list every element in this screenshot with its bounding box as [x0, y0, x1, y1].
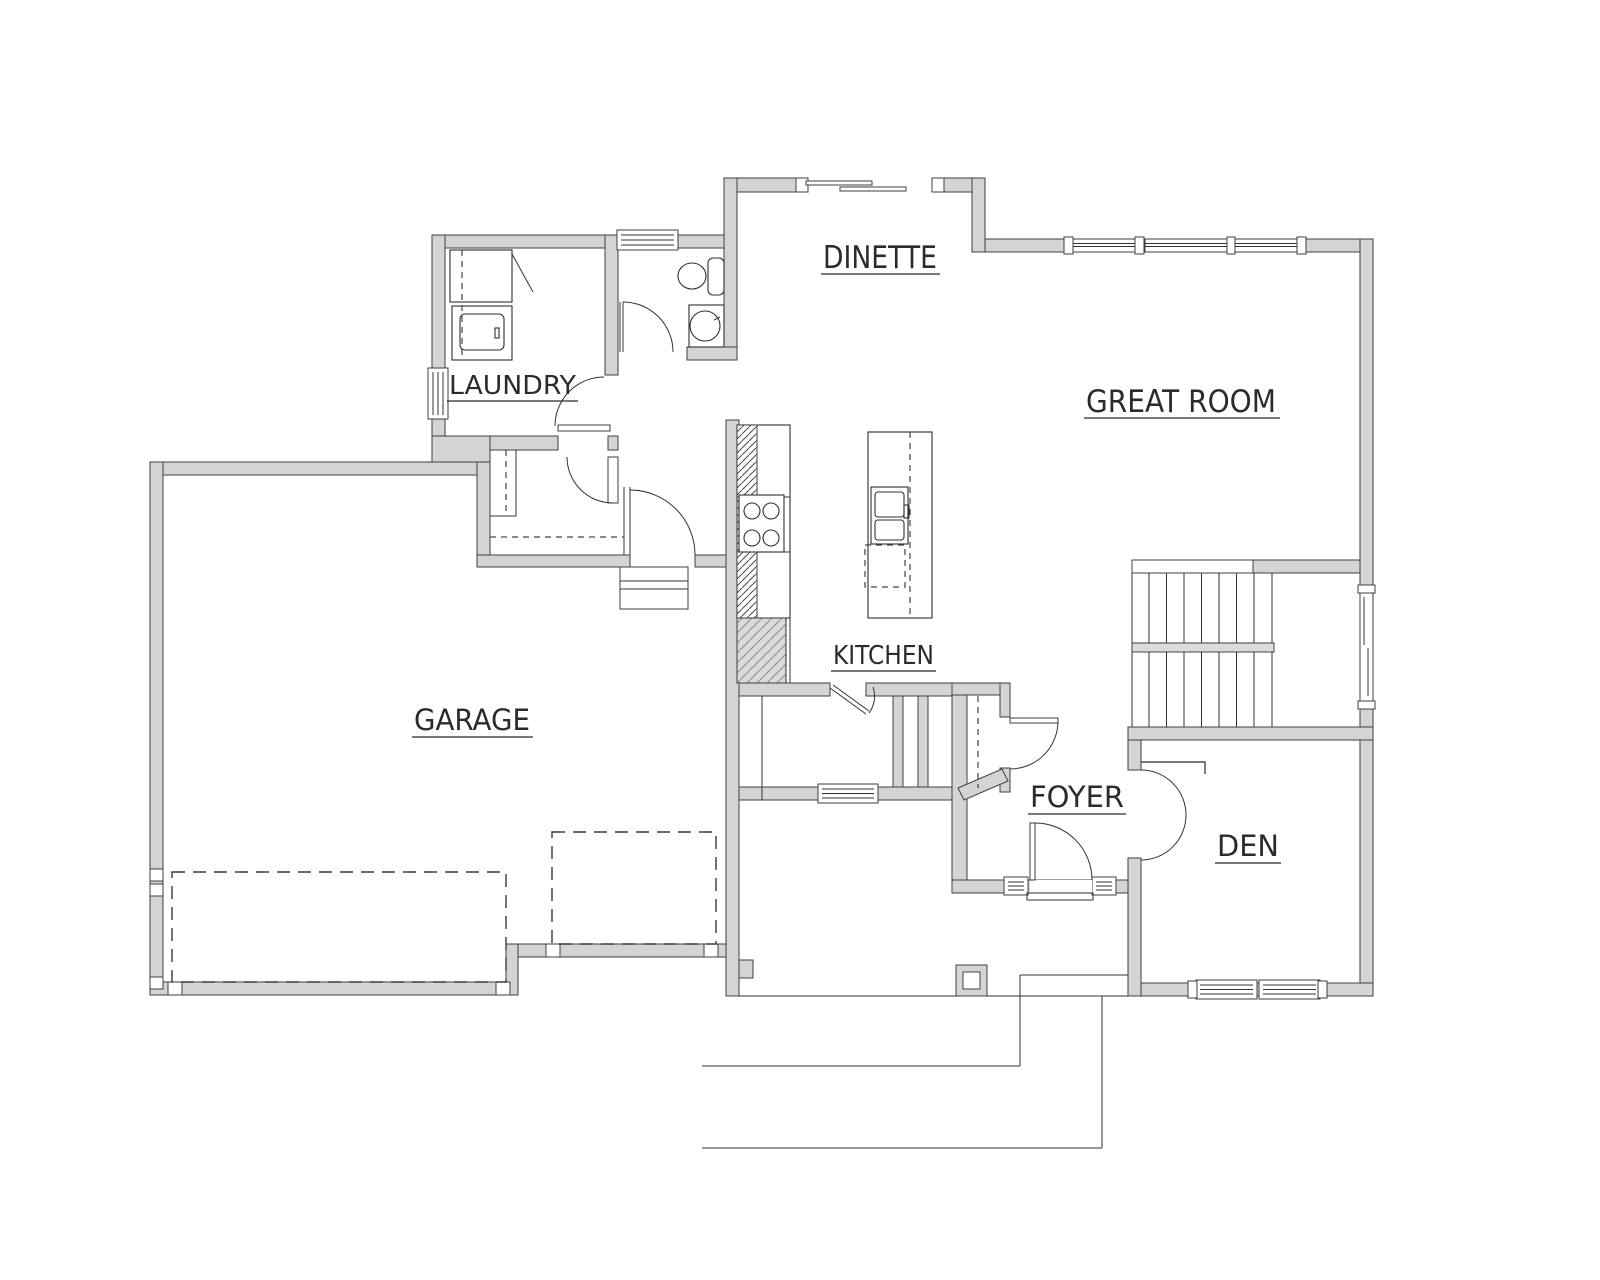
window-icon	[617, 230, 678, 250]
door-swing-icon	[1010, 718, 1058, 769]
toilet-icon	[678, 258, 724, 295]
room-label-text: KITCHEN	[833, 641, 934, 671]
front-stoop	[1027, 893, 1093, 900]
base-cabinet	[737, 618, 790, 683]
room-label-great-room: GREAT ROOM	[1084, 384, 1280, 420]
stairs-icon	[1132, 560, 1274, 774]
room-label-text: GARAGE	[414, 703, 530, 737]
laundry-fixtures	[450, 250, 533, 360]
door-swing-icon	[620, 302, 673, 352]
sliding-door-icon	[796, 177, 944, 193]
room-label-foyer: FOYER	[1028, 780, 1126, 814]
door-swing-icon	[567, 457, 618, 503]
door-swing-icon	[1141, 770, 1186, 860]
window-icon	[818, 784, 878, 803]
porch	[702, 893, 1128, 1148]
kitchen-island	[865, 432, 932, 618]
window-icon	[1064, 237, 1306, 254]
sink-icon	[689, 305, 724, 347]
garage-door-icon	[172, 872, 506, 982]
porch-post-icon	[956, 965, 987, 996]
wall-jamb-marks	[150, 869, 718, 995]
garage-door-icon	[552, 832, 716, 944]
room-label-kitchen: KITCHEN	[831, 641, 936, 671]
washer-icon	[452, 306, 512, 360]
floor-plan-sheet: DINETTE GREAT ROOM LAUNDRY KITCHEN GARAG…	[0, 0, 1600, 1280]
room-label-text: GREAT ROOM	[1086, 384, 1276, 420]
room-label-text: DEN	[1217, 829, 1279, 863]
room-label-garage: GARAGE	[412, 703, 533, 737]
door-swing-icon	[1030, 823, 1092, 893]
stair-rail	[1141, 762, 1205, 774]
room-label-text: FOYER	[1030, 780, 1124, 814]
entry-step-icon	[620, 567, 688, 609]
garage-doors	[172, 832, 716, 982]
cabinet-icon	[450, 250, 512, 302]
window-icon	[1188, 980, 1327, 999]
door-swing-icon	[624, 487, 695, 555]
room-label-dinette: DINETTE	[821, 240, 940, 276]
window-icon	[1358, 585, 1375, 709]
room-label-den: DEN	[1215, 829, 1281, 863]
cooktop-icon	[739, 495, 784, 552]
room-label-text: DINETTE	[823, 240, 937, 276]
window-icon	[428, 368, 448, 419]
floor-plan-drawing: DINETTE GREAT ROOM LAUNDRY KITCHEN GARAG…	[0, 0, 1600, 1280]
room-label-laundry: LAUNDRY	[447, 371, 578, 401]
room-label-text: LAUNDRY	[449, 371, 576, 401]
bath-fixtures	[678, 258, 724, 347]
room-labels: DINETTE GREAT ROOM LAUNDRY KITCHEN GARAG…	[412, 240, 1281, 863]
